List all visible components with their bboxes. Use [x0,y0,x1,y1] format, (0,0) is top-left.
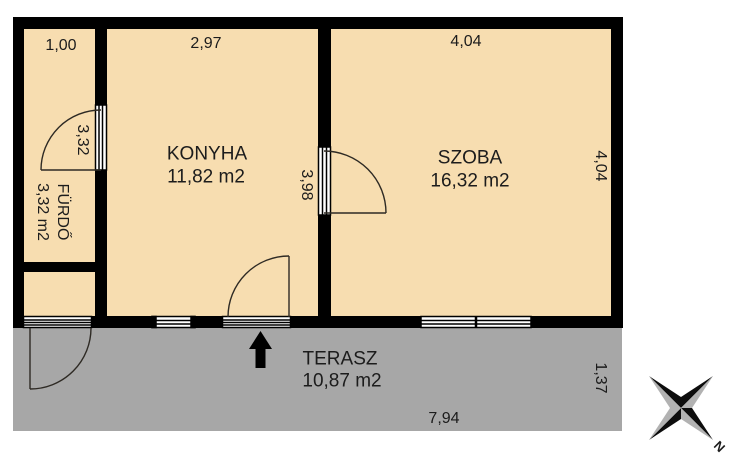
terrace-label: TERASZ [303,350,378,371]
kitchen-area: 11,82 m2 [167,168,245,189]
floor-plan: 1,00 2,97 4,04 7,94 3,32 3,98 4,04 1,37 … [0,0,730,463]
dim-room-width: 4,04 [450,33,481,51]
bathroom-label: FÜRDŐ [52,183,72,241]
terrace-area: 10,87 m2 [302,372,381,393]
bathroom-area: 3,32 m2 [32,183,52,241]
room-window [421,317,531,328]
bathroom-label-block: FÜRDŐ 3,32 m2 [32,183,72,241]
dim-room-height: 4,04 [591,150,609,181]
dim-terrace-width: 7,94 [428,410,459,428]
dim-bathroom-width: 1,00 [45,37,76,55]
dim-terrace-height: 1,37 [591,362,609,393]
hall-door-sill [24,317,92,328]
room-area: 16,32 m2 [430,172,509,193]
floor-plan-drawing [0,0,730,463]
bathroom-door-jamb [96,105,107,170]
dim-kitchen-width: 2,97 [190,35,221,53]
room-label: SZOBA [438,149,502,170]
hall-floor [24,272,95,316]
dim-kitchen-height: 3,98 [297,169,315,200]
room-door-jamb [319,147,331,215]
kitchen-label: KONYHA [167,145,247,166]
compass-rose-icon [649,376,713,440]
kitchen-door-sill [223,317,291,328]
dim-bathroom-height: 3,32 [73,124,91,155]
kitchen-window [152,317,195,328]
